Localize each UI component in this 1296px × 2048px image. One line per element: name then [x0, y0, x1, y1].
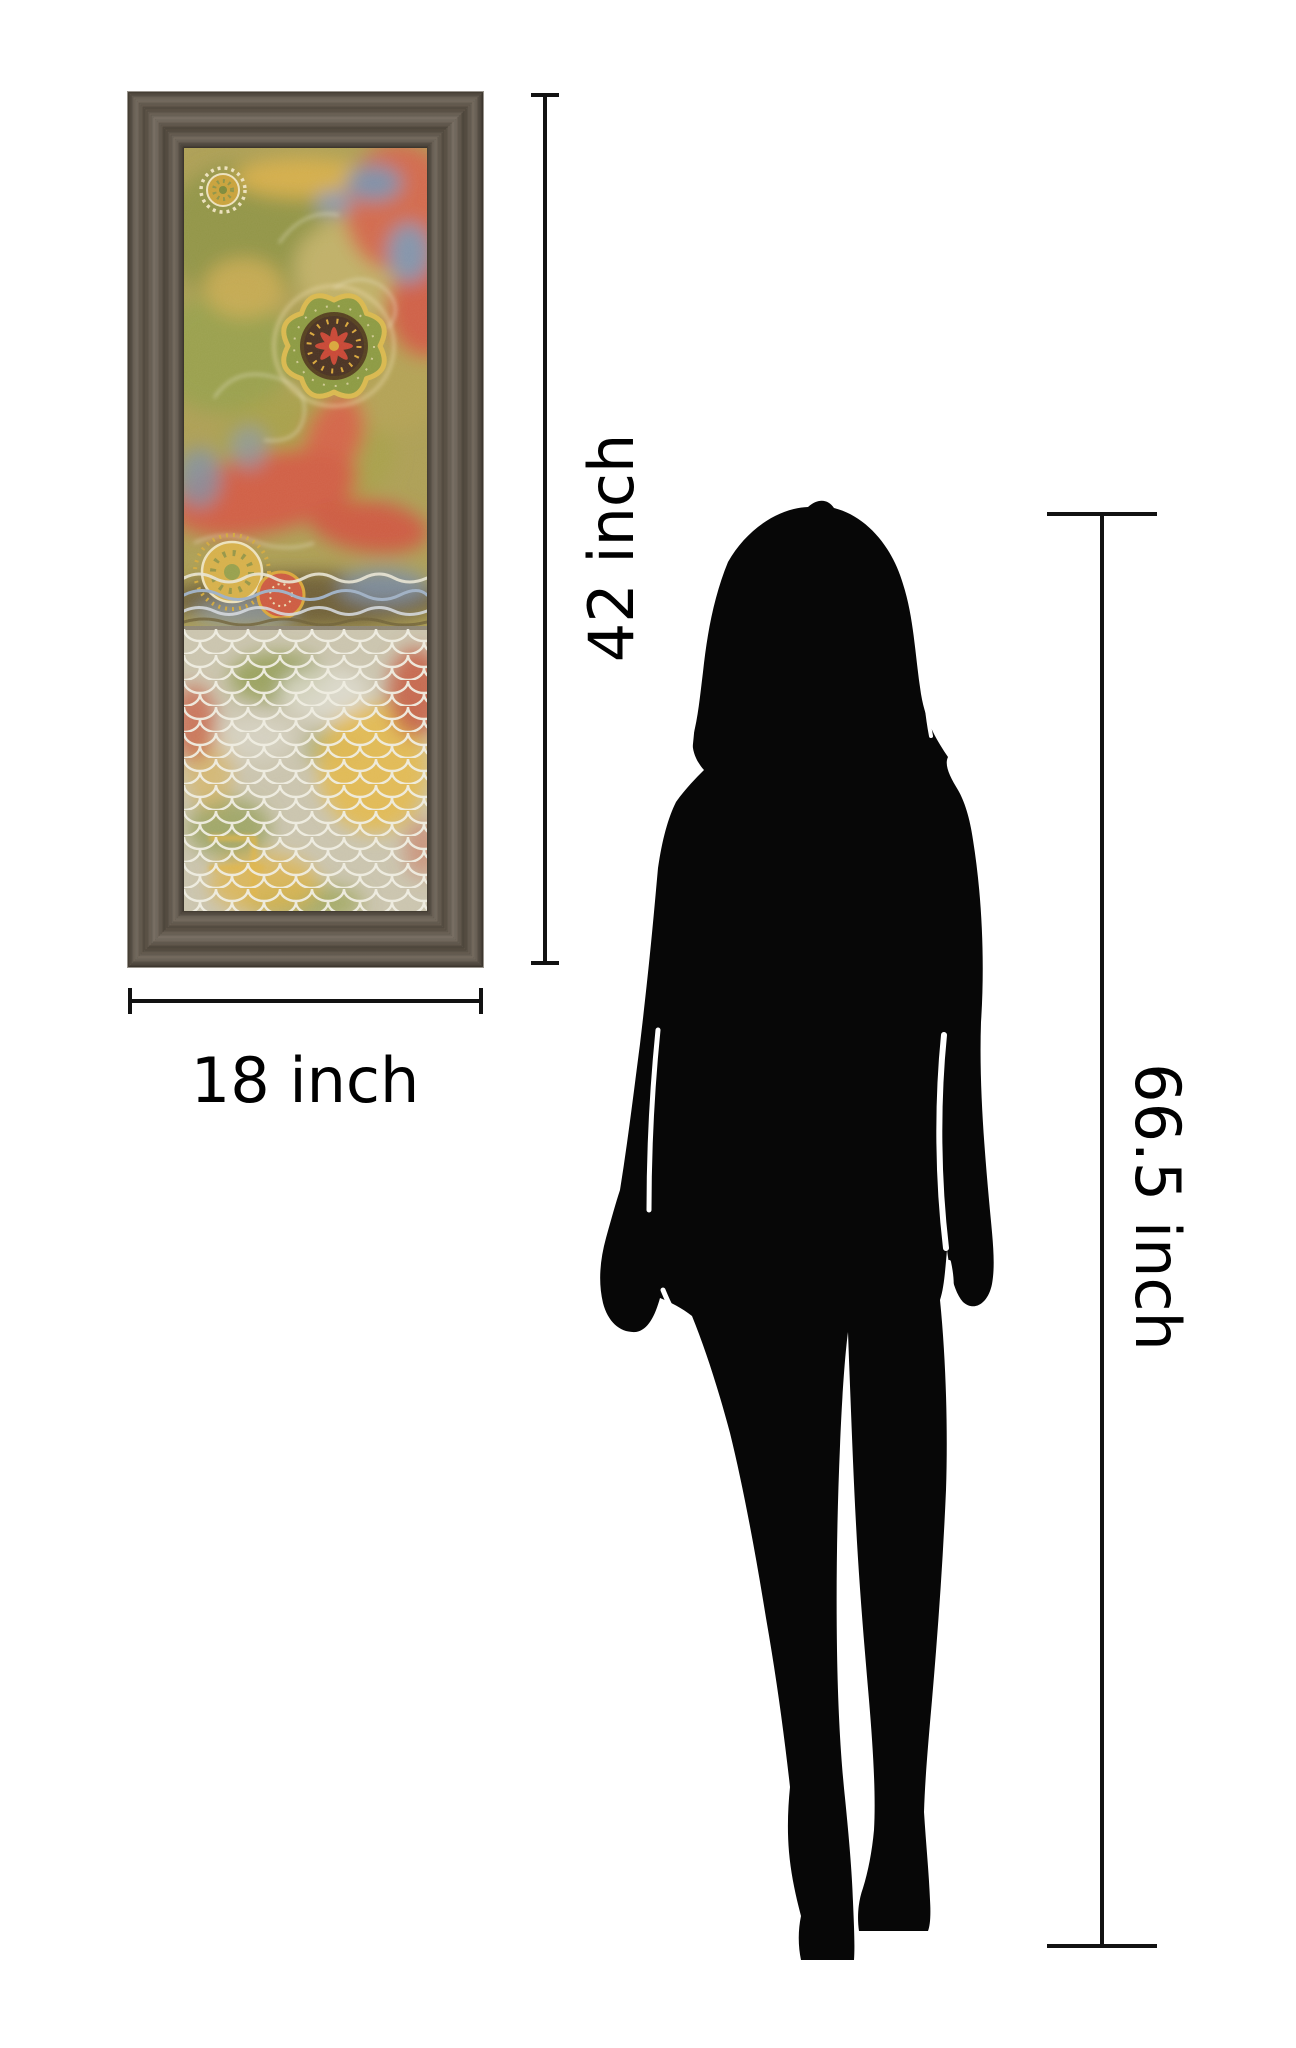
painting-artwork: [184, 148, 427, 911]
dimension-line-person-height: [1100, 512, 1104, 1948]
dimension-cap: [479, 988, 483, 1014]
dimension-line-artwork-height: [543, 93, 547, 965]
silhouette-body: [600, 501, 994, 1960]
frame-molding-left: [128, 92, 184, 967]
painting-canvas-texture: [184, 148, 427, 911]
frame-molding-bottom: [128, 911, 483, 967]
woman-silhouette: [590, 500, 1000, 1965]
frame-molding-top: [128, 92, 483, 148]
person-height-label: 66.5 inch: [1126, 1063, 1188, 1351]
woman-silhouette-graphic: [590, 500, 1000, 1965]
dimension-line-artwork-width: [128, 999, 483, 1003]
framed-painting: [184, 148, 427, 911]
frame-molding-right: [427, 92, 483, 967]
dimension-cap: [531, 93, 559, 97]
dimension-cap: [1047, 512, 1157, 516]
dimension-cap: [1047, 1944, 1157, 1948]
product-size-diagram: 42 inch 18 inch 66.5 inch: [0, 0, 1296, 2048]
artwork-width-label: 18 inch: [191, 1050, 420, 1112]
dimension-cap: [128, 988, 132, 1014]
artwork-frame: [128, 92, 483, 967]
dimension-cap: [531, 961, 559, 965]
